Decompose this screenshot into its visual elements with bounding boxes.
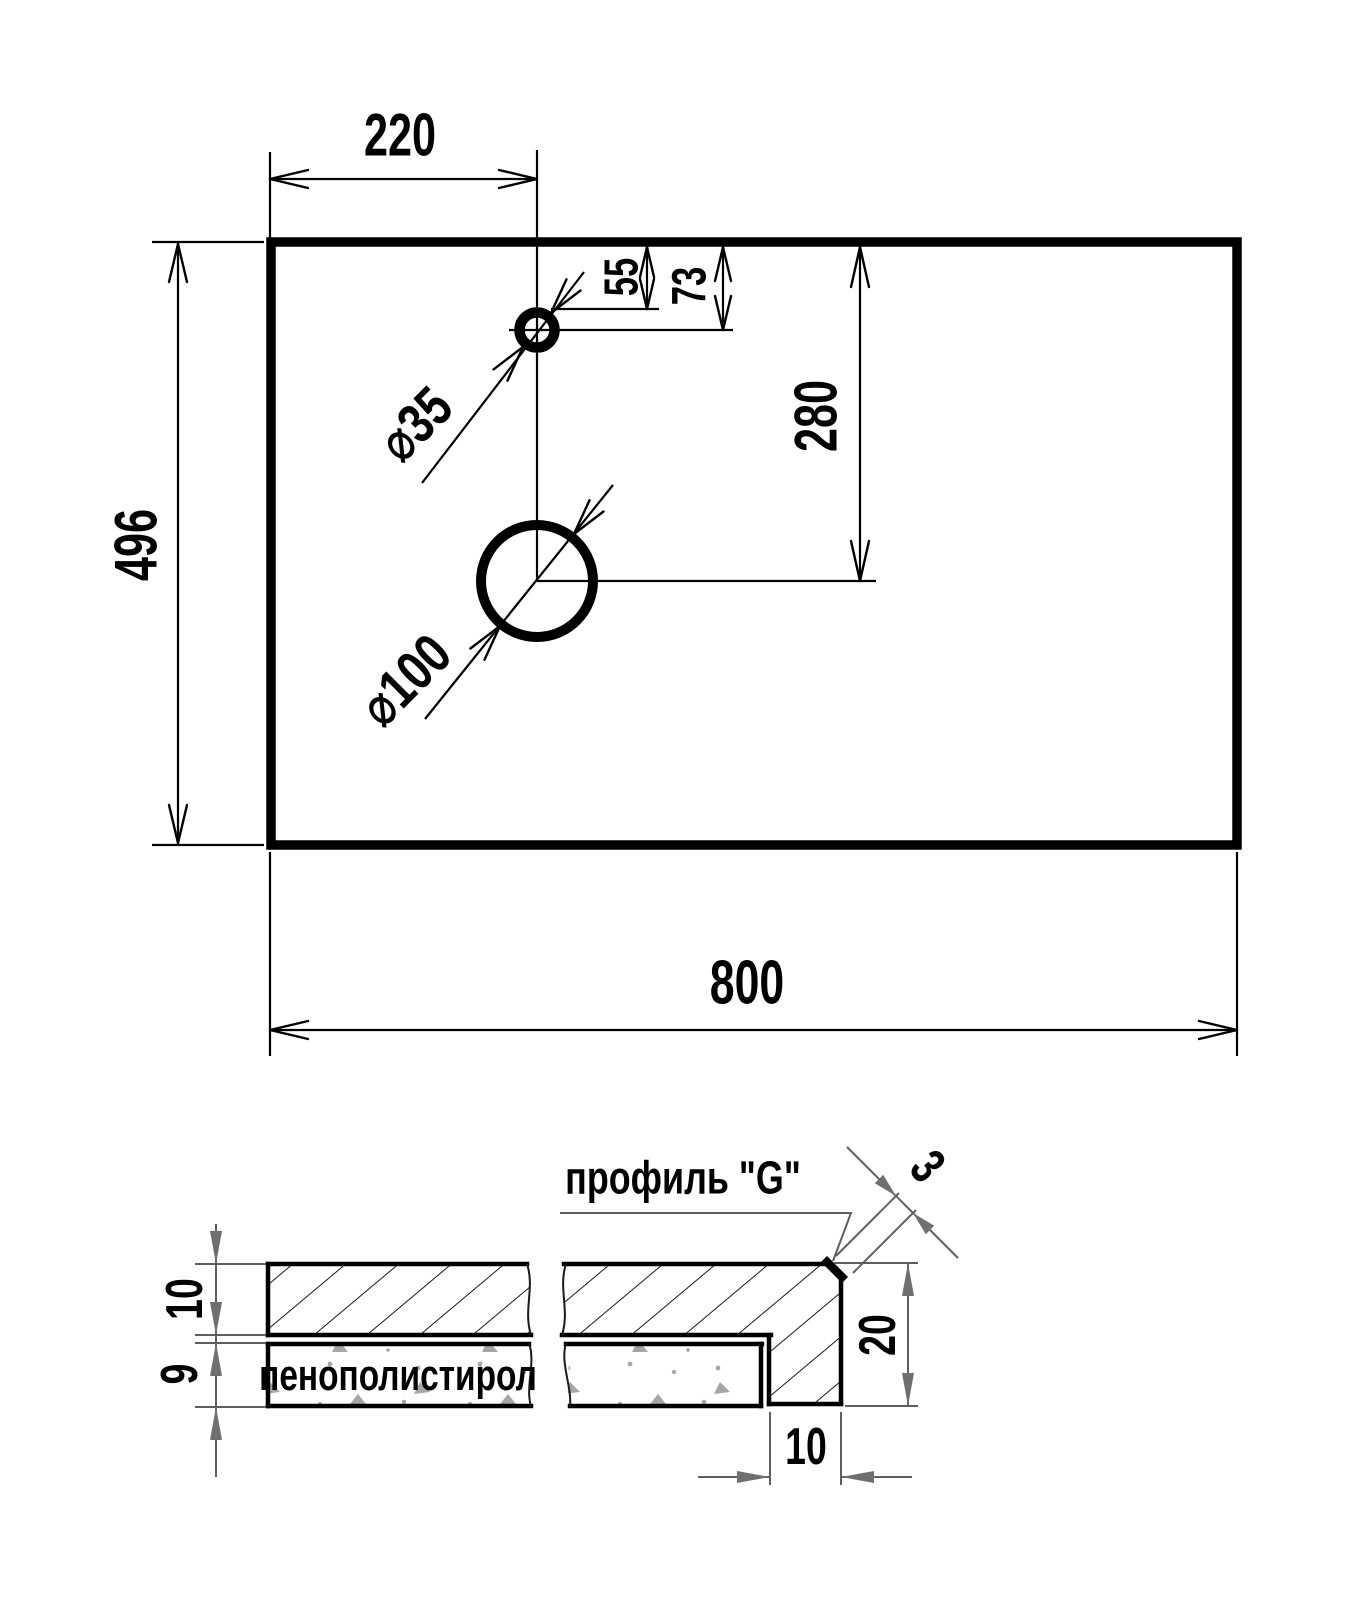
dim-73: 73 [662, 247, 731, 330]
dim-profile-wall-3-label: 3 [899, 1139, 957, 1193]
section-view: пенополистирол профиль "G" 10 [150, 1139, 958, 1485]
drain-hole-diameter-label: ⌀100 [347, 622, 463, 738]
dim-280-label: 280 [784, 380, 851, 452]
section-title: профиль "G" [565, 1152, 801, 1203]
dim-foam-9: 9 [150, 1343, 266, 1440]
dim-foam-9-label: 9 [150, 1364, 209, 1385]
plan-view: ⌀35 ⌀100 220 496 [104, 103, 1237, 1056]
faucet-hole-diameter-leader: ⌀35 [366, 272, 584, 483]
drain-hole-diameter-leader: ⌀100 [347, 485, 613, 738]
dim-800-label: 800 [710, 949, 784, 1018]
dim-220-label: 220 [364, 103, 436, 170]
dim-profile-20-label: 20 [848, 1314, 907, 1356]
foam-right-body [566, 1343, 762, 1407]
dim-73-label: 73 [662, 267, 716, 305]
dim-220: 220 [270, 103, 537, 238]
dim-800: 800 [270, 852, 1237, 1056]
dim-board-10-label: 10 [155, 1278, 214, 1320]
faucet-hole-diameter-label: ⌀35 [366, 375, 465, 474]
dim-profile-20: 20 [834, 1263, 918, 1406]
top-board-left-hatch [268, 1264, 531, 1335]
dim-280: 280 [784, 247, 869, 581]
drawing-svg: ⌀35 ⌀100 220 496 [0, 0, 1355, 1600]
dim-496-label: 496 [104, 509, 171, 581]
dim-55-label: 55 [594, 258, 648, 296]
dim-profile-width-10-label: 10 [785, 1417, 827, 1476]
dim-profile-wall-3: 3 [836, 1139, 958, 1273]
foam-material-label: пенополистирол [259, 1352, 537, 1400]
dim-profile-width-10: 10 [698, 1412, 912, 1485]
section-title-leader [560, 1213, 851, 1261]
panel-outline [271, 242, 1237, 845]
dim-496: 496 [104, 242, 264, 845]
technical-drawing-canvas: ⌀35 ⌀100 220 496 [0, 0, 1355, 1600]
